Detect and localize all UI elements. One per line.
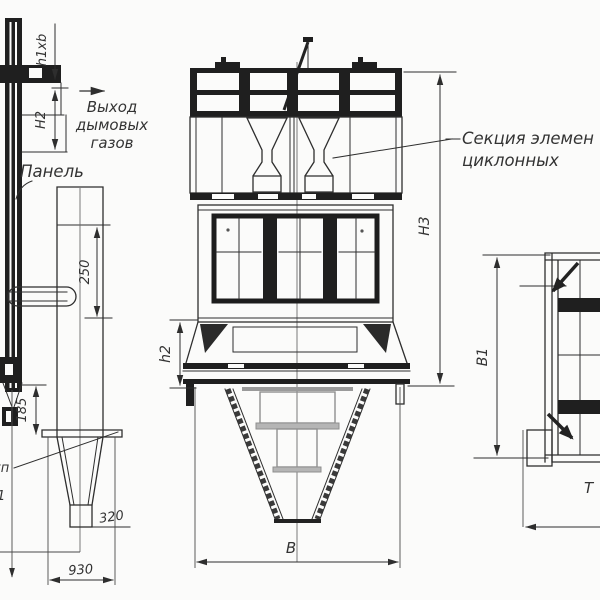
gas-outlet-note-line2: дымовых — [75, 116, 148, 134]
left-side-view: h1xb Н2 Выход дымовых газов Панель 250 — [0, 18, 148, 585]
dim-label-320: 320 — [98, 508, 125, 526]
panel-section — [198, 205, 393, 322]
top-frame-band — [190, 68, 402, 117]
lifting-lugs — [215, 57, 377, 68]
gas-flow-arrow-icon — [553, 263, 578, 291]
dim-label-185: 185 — [15, 398, 30, 423]
clipped-note-line1: уп — [0, 461, 10, 476]
dim-label-250: 250 — [78, 260, 93, 285]
engineering-drawing-sheet: h1xb Н2 Выход дымовых газов Панель 250 — [0, 0, 600, 600]
gas-outlet-note-line1: Выход — [87, 98, 138, 116]
leader-line — [333, 139, 452, 158]
cyclone-assembly-drawing: h1xb Н2 Выход дымовых газов Панель 250 — [0, 0, 600, 600]
dim-label-B: В — [286, 539, 296, 557]
panel-outline — [57, 187, 110, 552]
front-view: В h2 Н3 Секция элемен циклонных — [158, 37, 594, 568]
right-casing — [545, 253, 600, 462]
dim-label-H2: Н2 — [34, 111, 49, 129]
outlet-box — [527, 430, 552, 466]
dust-hopper — [225, 387, 370, 521]
cyclone-element — [247, 118, 287, 192]
dim-label-h1xb: h1xb — [35, 34, 50, 66]
gas-outlet-note-line3: газов — [90, 134, 133, 152]
cyclone-element — [299, 118, 339, 192]
transition-section — [186, 322, 407, 363]
right-side-view: В1 Т — [474, 253, 600, 527]
base-band — [183, 363, 410, 406]
dim-label-H3: Н3 — [417, 216, 433, 235]
dim-label-h2: h2 — [158, 345, 174, 363]
panel-note: Панель — [20, 162, 84, 181]
clipped-note-line2: 1 — [0, 489, 5, 504]
section-note-line1: Секция элемен — [462, 129, 594, 148]
hopper-internal-box — [260, 392, 335, 423]
dim-label-930: 930 — [68, 562, 94, 579]
section-note-line2: циклонных — [462, 151, 559, 170]
dim-label-B1: В1 — [475, 348, 491, 367]
clipped-note-T: Т — [584, 479, 595, 497]
cyclone-elements-section — [190, 117, 402, 200]
